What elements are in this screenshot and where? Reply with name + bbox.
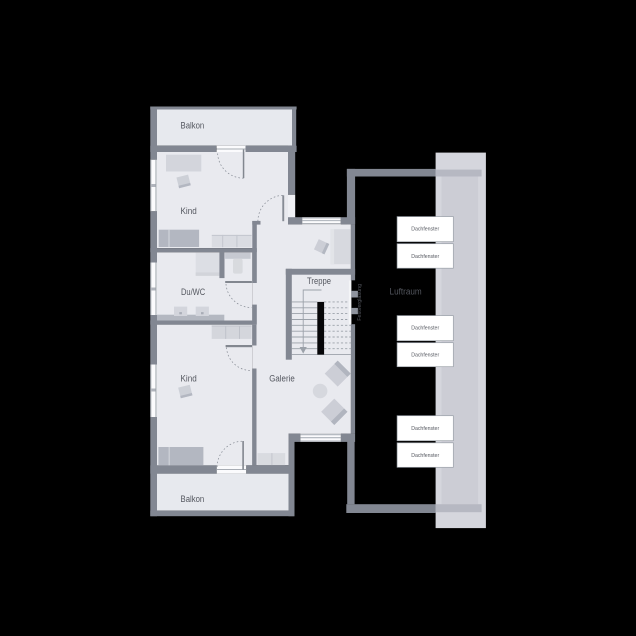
svg-text:Dachfenster: Dachfenster	[411, 453, 439, 459]
svg-text:Treppe: Treppe	[307, 276, 331, 287]
svg-text:Luftraum: Luftraum	[390, 287, 422, 297]
svg-text:Dachfenster: Dachfenster	[411, 254, 439, 260]
svg-text:Galerie: Galerie	[269, 374, 295, 385]
svg-text:Kind: Kind	[181, 206, 197, 217]
svg-text:Balkon: Balkon	[181, 121, 205, 132]
svg-text:Balkon: Balkon	[181, 494, 205, 505]
svg-text:Du/WC: Du/WC	[181, 287, 205, 298]
svg-text:Dachfenster: Dachfenster	[411, 326, 439, 332]
svg-text:Festverglasung: Festverglasung	[357, 284, 363, 321]
svg-text:Kind: Kind	[181, 374, 197, 385]
svg-text:Dachfenster: Dachfenster	[411, 353, 439, 359]
svg-text:Dachfenster: Dachfenster	[411, 227, 439, 233]
svg-text:Dachfenster: Dachfenster	[411, 426, 439, 432]
